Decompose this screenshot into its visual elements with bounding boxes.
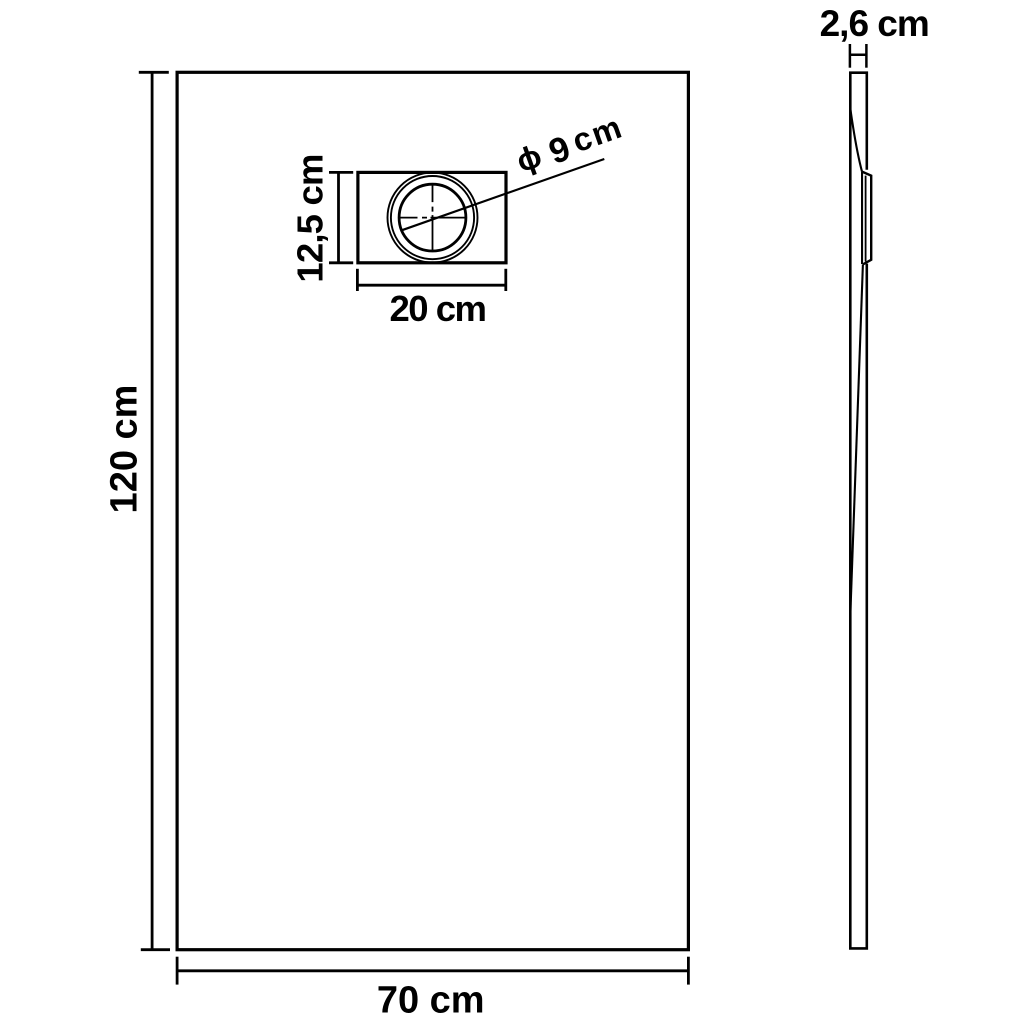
svg-text:2,6 cm: 2,6 cm xyxy=(820,3,929,44)
svg-text:70 cm: 70 cm xyxy=(377,980,485,1022)
svg-text:12,5 cm: 12,5 cm xyxy=(289,154,330,282)
svg-text:20 cm: 20 cm xyxy=(390,288,486,329)
svg-text:120 cm: 120 cm xyxy=(104,385,146,514)
